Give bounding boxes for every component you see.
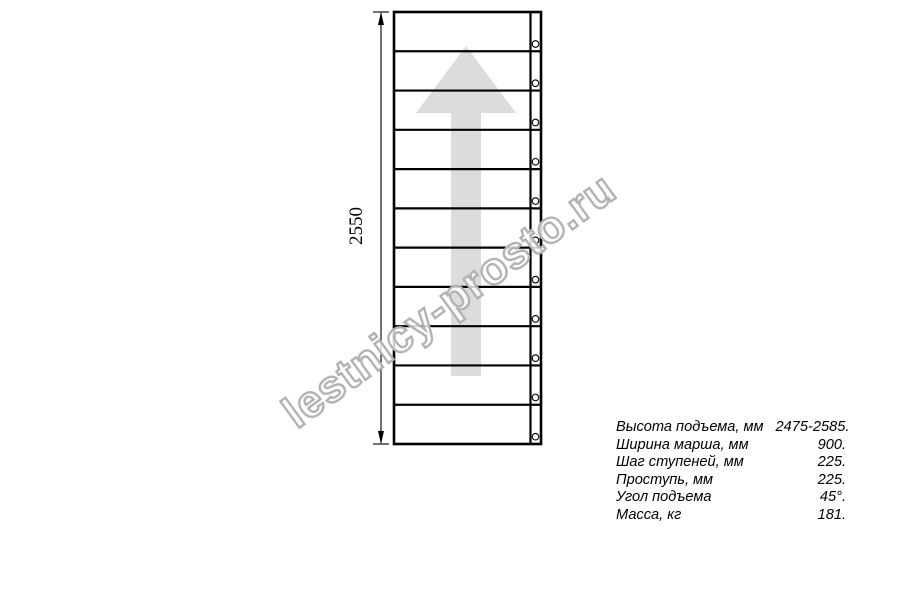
- fastener-circle: [532, 276, 539, 283]
- spec-value: 181.: [818, 507, 846, 525]
- spec-row: Проступь, мм225.: [616, 472, 846, 490]
- spec-label: Шаг ступеней, мм: [616, 454, 744, 472]
- fastener-circle: [532, 119, 539, 126]
- spec-label: Ширина марша, мм: [616, 437, 749, 455]
- spec-value: 45°.: [820, 489, 846, 507]
- fastener-circle: [532, 394, 539, 401]
- dimension-label: 2550: [346, 207, 367, 245]
- spec-label: Масса, кг: [616, 507, 681, 525]
- watermark-text: lestnicy-prosto.ru: [273, 162, 625, 437]
- spec-label: Проступь, мм: [616, 472, 713, 490]
- fastener-circle: [532, 158, 539, 165]
- fastener-circle: [532, 80, 539, 87]
- spec-row: Масса, кг181.: [616, 507, 846, 525]
- fastener-circle: [532, 433, 539, 440]
- fastener-circle: [532, 41, 539, 48]
- spec-row: Угол подъема45°.: [616, 489, 846, 507]
- spec-value: 900.: [818, 437, 846, 455]
- spec-label: Высота подъема, мм: [616, 419, 764, 437]
- stair-drawing-page: 2550 lestnicy-prosto.ru Высота подъема, …: [0, 0, 900, 600]
- spec-row: Шаг ступеней, мм225.: [616, 454, 846, 472]
- fastener-circle: [532, 355, 539, 362]
- spec-value: 2475-2585.: [776, 419, 850, 437]
- fastener-circle: [532, 316, 539, 323]
- dimension-arrow-top: [378, 12, 384, 25]
- spec-label: Угол подъема: [616, 489, 711, 507]
- spec-row: Ширина марша, мм900.: [616, 437, 846, 455]
- dimension-arrow-bottom: [378, 431, 384, 444]
- spec-value: 225.: [818, 454, 846, 472]
- spec-value: 225.: [818, 472, 846, 490]
- spec-row: Высота подъема, мм2475-2585.: [616, 419, 846, 437]
- specs-table: Высота подъема, мм2475-2585.Ширина марша…: [616, 419, 846, 524]
